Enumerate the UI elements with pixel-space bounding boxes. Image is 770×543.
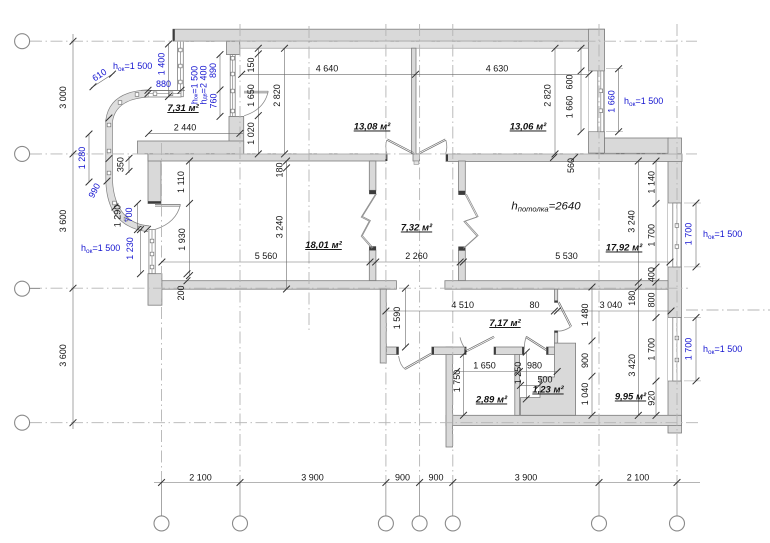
svg-text:4 510: 4 510 xyxy=(451,300,474,310)
svg-text:1 480: 1 480 xyxy=(580,304,590,327)
svg-text:1 700: 1 700 xyxy=(684,338,694,361)
svg-text:900: 900 xyxy=(428,472,443,482)
svg-text:180: 180 xyxy=(275,162,285,177)
svg-text:7,31 м²: 7,31 м² xyxy=(167,103,199,114)
svg-text:18,01 м²: 18,01 м² xyxy=(305,240,342,251)
svg-text:1 400: 1 400 xyxy=(157,53,167,76)
svg-text:880: 880 xyxy=(156,79,171,89)
svg-text:1 660: 1 660 xyxy=(565,96,575,119)
svg-text:150: 150 xyxy=(246,57,256,72)
svg-text:1 250: 1 250 xyxy=(513,362,523,385)
svg-text:4 630: 4 630 xyxy=(486,64,509,74)
svg-text:800: 800 xyxy=(647,292,657,307)
svg-text:1 280: 1 280 xyxy=(77,147,87,170)
svg-text:2 440: 2 440 xyxy=(174,123,197,133)
svg-text:3 040: 3 040 xyxy=(600,300,623,310)
svg-text:5 530: 5 530 xyxy=(555,251,578,261)
svg-text:1 110: 1 110 xyxy=(176,171,186,193)
svg-text:17,92 м²: 17,92 м² xyxy=(606,243,643,254)
svg-text:700: 700 xyxy=(124,207,134,222)
svg-text:980: 980 xyxy=(527,361,542,371)
svg-text:200: 200 xyxy=(176,285,186,300)
svg-text:900: 900 xyxy=(395,472,410,482)
svg-text:4 640: 4 640 xyxy=(316,64,339,74)
svg-text:13,06 м²: 13,06 м² xyxy=(510,122,547,133)
svg-text:3 600: 3 600 xyxy=(58,210,68,233)
svg-text:1 650: 1 650 xyxy=(473,361,496,371)
svg-text:3 240: 3 240 xyxy=(627,210,637,233)
svg-text:1 590: 1 590 xyxy=(392,307,402,330)
svg-text:hок=1 500: hок=1 500 xyxy=(81,243,120,255)
svg-text:5 560: 5 560 xyxy=(255,251,278,261)
svg-text:13,08 м²: 13,08 м² xyxy=(354,122,391,133)
svg-text:2,89 м²: 2,89 м² xyxy=(475,395,508,406)
svg-text:760: 760 xyxy=(208,93,218,108)
svg-text:1 140: 1 140 xyxy=(647,171,657,194)
svg-text:3 420: 3 420 xyxy=(627,354,637,377)
svg-text:3 000: 3 000 xyxy=(58,86,68,109)
svg-text:2 100: 2 100 xyxy=(189,472,212,482)
svg-text:500: 500 xyxy=(537,375,552,385)
svg-text:hок=1 500: hок=1 500 xyxy=(624,96,663,108)
svg-text:3 900: 3 900 xyxy=(515,472,538,482)
svg-text:80: 80 xyxy=(529,300,539,310)
svg-text:890: 890 xyxy=(208,63,218,78)
svg-text:990: 990 xyxy=(86,182,102,200)
svg-text:600: 600 xyxy=(565,74,575,89)
svg-text:1 040: 1 040 xyxy=(580,383,590,406)
svg-text:1,23 м²: 1,23 м² xyxy=(532,385,564,396)
svg-text:560: 560 xyxy=(566,158,576,173)
svg-text:1 700: 1 700 xyxy=(684,223,694,246)
svg-text:1 750: 1 750 xyxy=(452,370,462,393)
svg-text:7,32 м²: 7,32 м² xyxy=(401,223,433,234)
svg-text:3 900: 3 900 xyxy=(301,472,324,482)
svg-text:3 240: 3 240 xyxy=(275,216,285,239)
svg-text:2 820: 2 820 xyxy=(272,84,282,107)
svg-text:2 100: 2 100 xyxy=(627,472,650,482)
svg-text:7,17 м²: 7,17 м² xyxy=(489,318,521,329)
svg-text:9,95 м²: 9,95 м² xyxy=(615,392,647,403)
svg-text:180: 180 xyxy=(627,291,637,306)
svg-text:1 660: 1 660 xyxy=(607,90,617,113)
svg-text:1 230: 1 230 xyxy=(125,237,135,260)
svg-text:1 700: 1 700 xyxy=(647,338,657,361)
svg-text:900: 900 xyxy=(580,353,590,368)
svg-text:1 020: 1 020 xyxy=(246,122,256,145)
svg-text:1 930: 1 930 xyxy=(177,228,187,251)
svg-text:hок=1 500: hок=1 500 xyxy=(703,229,742,241)
svg-text:hпотолка=2640: hпотолка=2640 xyxy=(511,201,581,214)
svg-text:610: 610 xyxy=(90,67,108,84)
svg-text:2 260: 2 260 xyxy=(405,251,428,261)
svg-text:hок=1 500: hок=1 500 xyxy=(113,61,152,73)
svg-text:hдв=2 400: hдв=2 400 xyxy=(199,66,209,105)
svg-text:1 700: 1 700 xyxy=(647,224,657,247)
svg-text:920: 920 xyxy=(647,391,657,406)
svg-text:2 820: 2 820 xyxy=(543,84,553,107)
svg-text:400: 400 xyxy=(647,267,657,282)
svg-text:350: 350 xyxy=(116,157,126,172)
svg-text:1 650: 1 650 xyxy=(246,84,256,107)
svg-text:hок=1 500: hок=1 500 xyxy=(703,344,742,356)
svg-text:3 600: 3 600 xyxy=(58,344,68,367)
